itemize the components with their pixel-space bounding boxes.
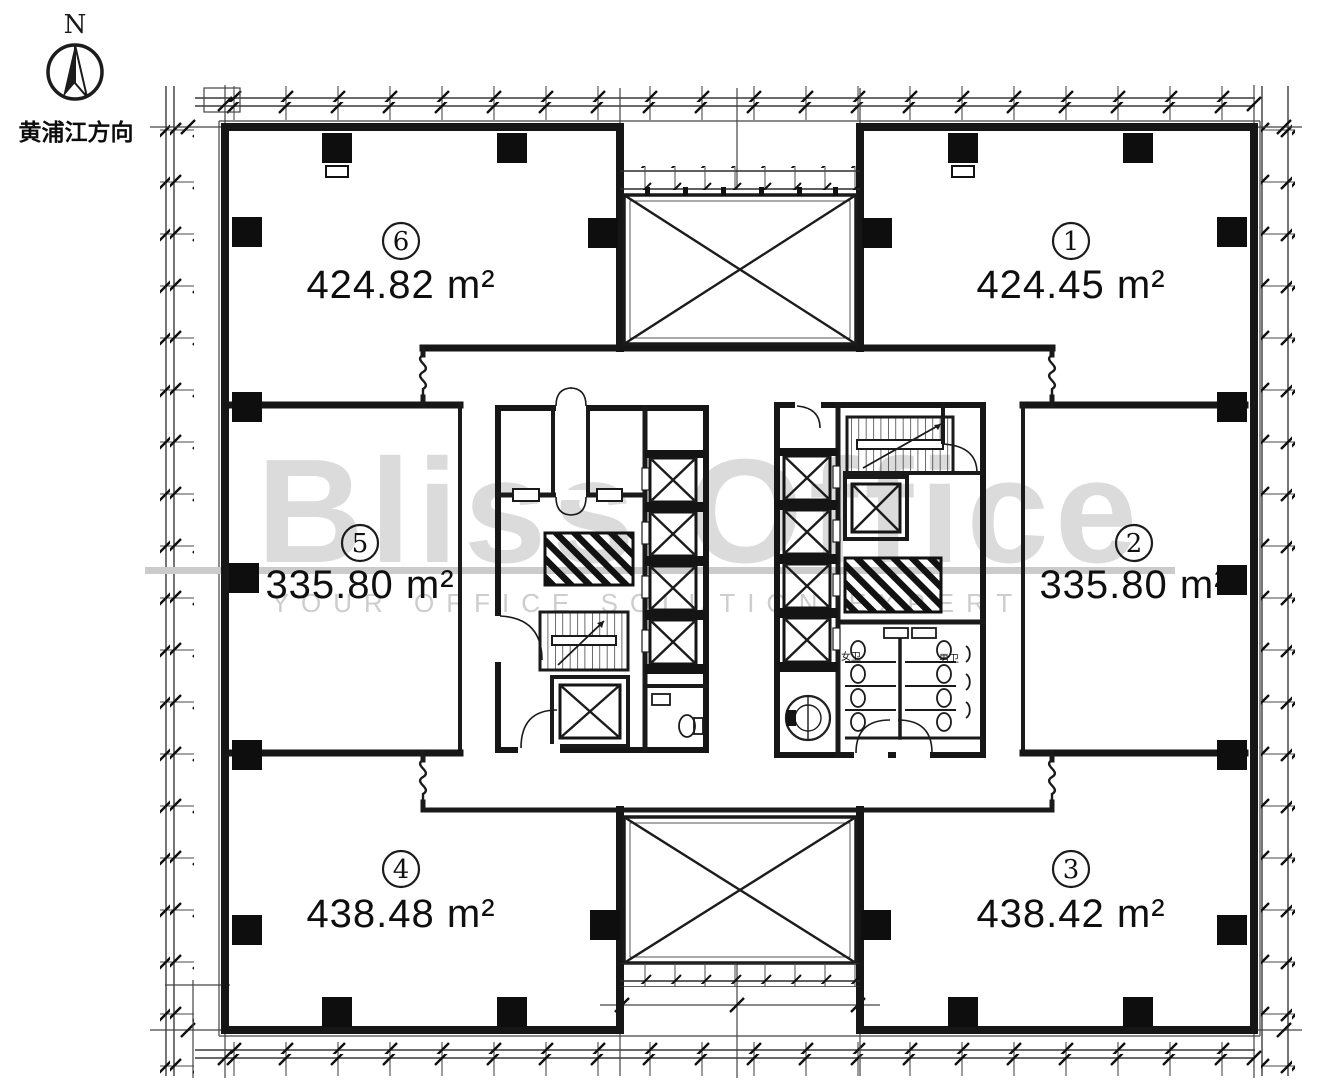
band-right xyxy=(1261,86,1295,1076)
floor-plan-canvas: Bliss Office YOUR OFFICE SOLUTION EXPERT xyxy=(0,0,1324,1080)
shaft-hatch xyxy=(545,533,633,585)
unit-area: 424.82 m² xyxy=(306,263,495,307)
unit-label-4: 4 438.48 m² xyxy=(306,851,495,936)
band-bottom xyxy=(195,1042,1255,1076)
band-top xyxy=(195,86,1255,120)
elevator-icon xyxy=(650,620,696,664)
mens-restroom-label: 男卫 xyxy=(939,653,959,665)
unit-label-1: 1 424.45 m² xyxy=(976,223,1165,307)
north-arrow-icon xyxy=(48,45,102,99)
door-break-symbol xyxy=(1049,355,1055,397)
door-break-symbol xyxy=(420,355,426,397)
unit-area: 335.80 m² xyxy=(1039,563,1228,607)
unit-label-6: 6 424.82 m² xyxy=(306,223,495,307)
compass: N 黄浦江方向 xyxy=(19,10,134,146)
atrium-void-bottom xyxy=(620,817,860,987)
unit-label-3: 3 438.42 m² xyxy=(976,851,1165,936)
unit-number: 1 xyxy=(1063,227,1080,257)
elevator-lower-left xyxy=(552,677,628,746)
unit-number: 6 xyxy=(393,227,410,257)
unit-number: 2 xyxy=(1126,529,1143,559)
north-label: N xyxy=(64,10,87,40)
spiral-stair xyxy=(786,696,830,740)
floor-plan-page: Bliss Office YOUR OFFICE SOLUTION EXPERT xyxy=(0,0,1324,1080)
unit-area: 438.48 m² xyxy=(306,892,495,936)
shaft-hatch xyxy=(845,558,941,612)
unit-number: 3 xyxy=(1063,855,1080,885)
unit-area: 335.80 m² xyxy=(265,563,454,607)
elevator-icon xyxy=(784,618,830,662)
river-direction-label: 黄浦江方向 xyxy=(19,119,134,146)
unit-area: 424.45 m² xyxy=(976,263,1165,307)
unit-number: 4 xyxy=(393,855,410,885)
unit-number: 5 xyxy=(352,529,369,559)
stairwell-left xyxy=(540,612,628,670)
band-left xyxy=(160,86,194,1076)
atrium-void-top xyxy=(620,166,860,344)
womens-restroom-label: 女卫 xyxy=(841,650,861,663)
door-break-symbol xyxy=(1049,760,1055,802)
unit-area: 438.42 m² xyxy=(976,892,1165,936)
door-break-symbol xyxy=(420,760,426,802)
restroom-small xyxy=(645,686,706,737)
